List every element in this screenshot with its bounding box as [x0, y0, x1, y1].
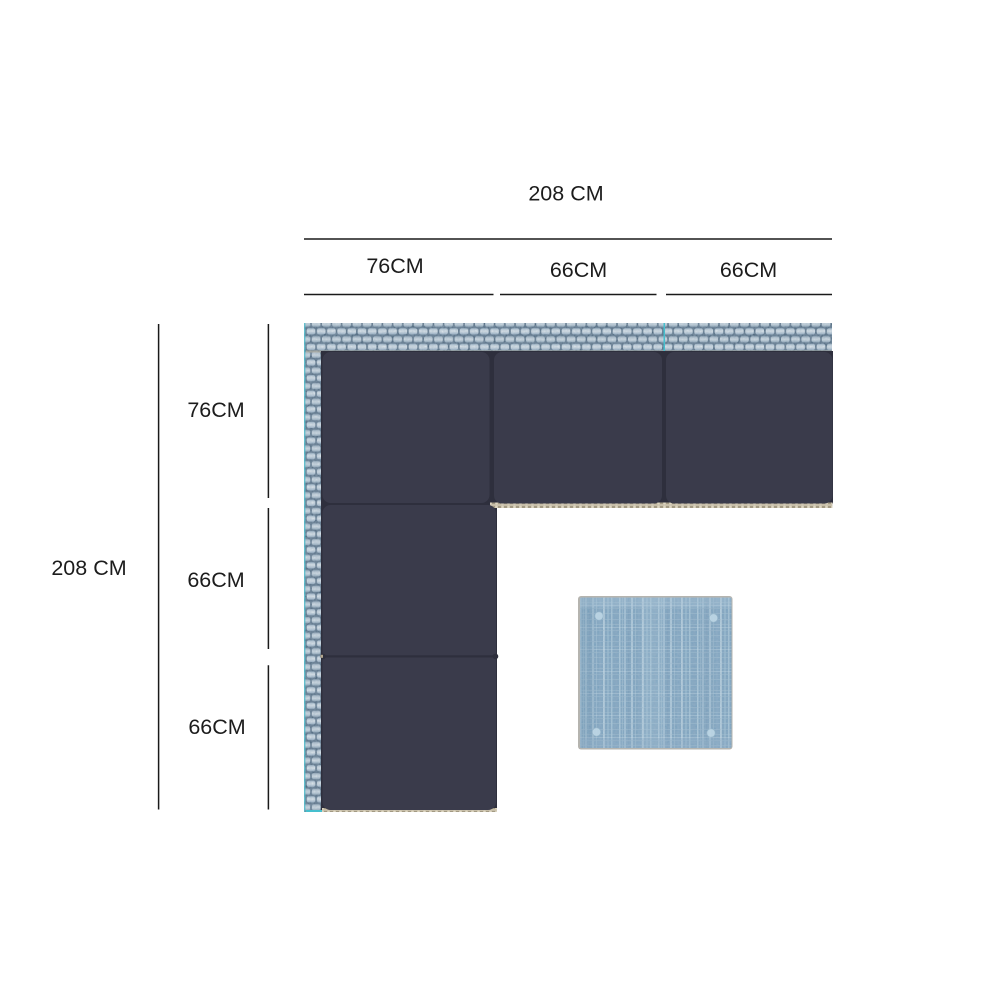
- svg-text:208 CM: 208 CM: [51, 556, 126, 580]
- svg-text:66CM: 66CM: [188, 715, 245, 739]
- svg-text:76CM: 76CM: [366, 254, 423, 278]
- svg-text:66CM: 66CM: [187, 568, 244, 592]
- svg-text:66CM: 66CM: [720, 258, 777, 282]
- svg-text:208 CM: 208 CM: [528, 182, 603, 206]
- svg-text:66CM: 66CM: [550, 258, 607, 282]
- svg-text:76CM: 76CM: [187, 398, 244, 422]
